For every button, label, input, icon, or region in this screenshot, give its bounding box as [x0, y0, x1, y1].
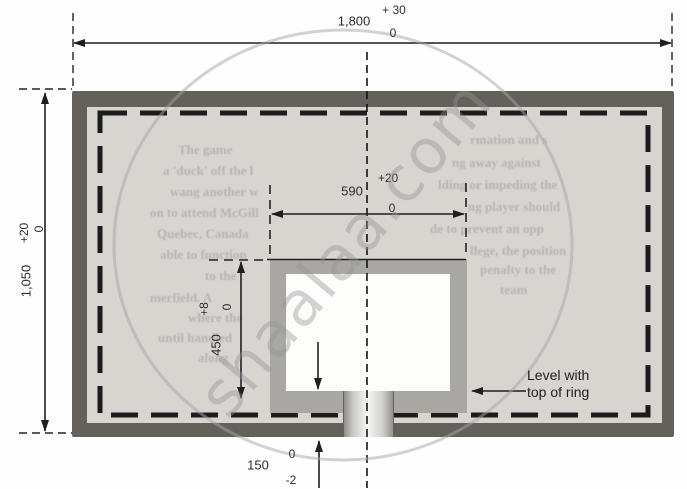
- show-through-text: on to attend McGill: [150, 205, 259, 221]
- show-through-text: Quebec, Canada: [157, 226, 249, 242]
- dim-width-value: 1,800: [338, 14, 371, 29]
- show-through-text: to the: [205, 268, 236, 284]
- show-through-text: ng player should: [468, 199, 560, 215]
- dim-inner-height-tol-lower: 0: [220, 304, 234, 311]
- dim-inner-height-tol-upper: +8: [197, 302, 211, 316]
- show-through-text: a 'duck' off the l: [163, 163, 253, 179]
- dim-bottom-value: 150: [247, 458, 269, 473]
- backboard-dimension-diagram: The game a 'duck' off the l wang another…: [0, 0, 687, 489]
- show-through-text: penalty to the: [480, 262, 556, 278]
- show-through-text: lding or impeding the: [438, 177, 557, 193]
- ring-level-note-line1: Level with: [527, 367, 589, 383]
- dim-bottom-tol-lower: -2: [286, 473, 297, 487]
- show-through-text: wang another w: [170, 184, 259, 200]
- show-through-text: llege, the position: [470, 243, 566, 259]
- ring-level-note-line2: top of ring: [527, 384, 589, 400]
- dim-height-value: 1,050: [19, 265, 34, 298]
- dim-height-tol-upper: +20: [17, 223, 31, 243]
- show-through-text: able to function: [160, 247, 247, 263]
- show-through-text: de to prevent an opp: [430, 221, 544, 237]
- dim-bottom-tol-upper: 0: [289, 447, 296, 461]
- show-through-text: team: [500, 282, 527, 298]
- dim-width-tol-upper: + 30: [382, 3, 406, 17]
- show-through-text: The game: [178, 142, 233, 158]
- ring-mount-band: [343, 391, 394, 437]
- dim-width-tol-lower: 0: [390, 26, 397, 40]
- dim-height-tol-lower: 0: [32, 226, 46, 233]
